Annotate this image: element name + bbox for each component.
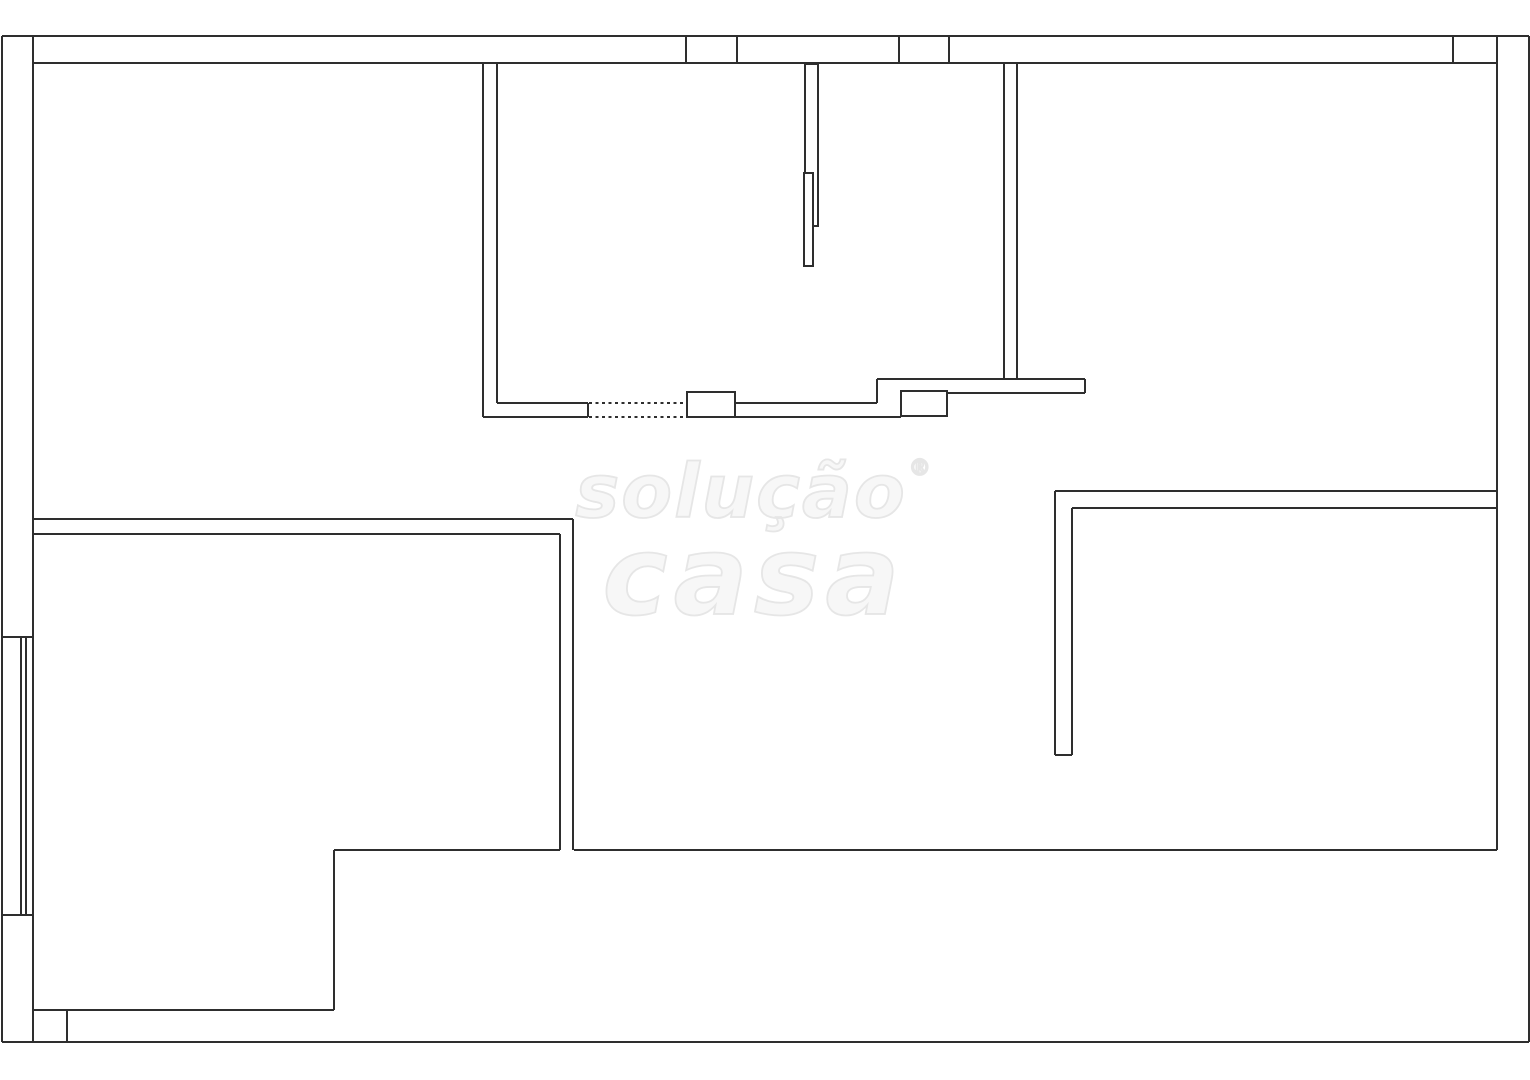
- floorplan-canvas: solução® casa: [0, 0, 1530, 1080]
- floorplan-drawing: [0, 0, 1530, 1080]
- pillar-2: [901, 391, 947, 416]
- pillar-1: [687, 392, 735, 417]
- door-leaf: [804, 173, 813, 266]
